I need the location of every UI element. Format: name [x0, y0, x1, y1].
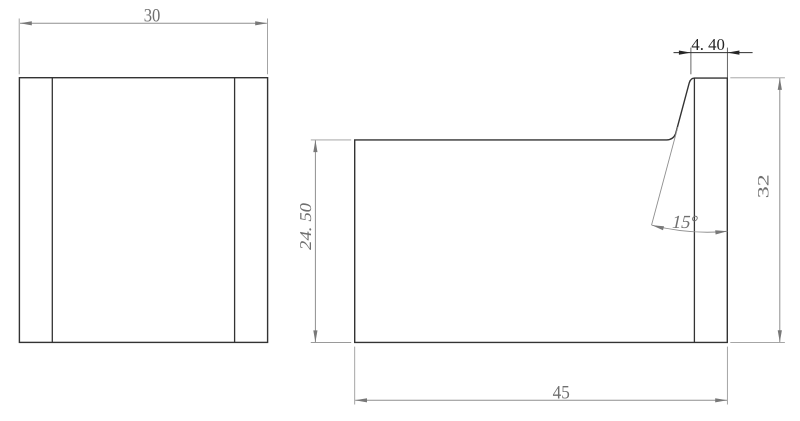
svg-text:45: 45 [553, 383, 570, 404]
svg-text:15°: 15° [670, 212, 700, 233]
svg-text:4. 40: 4. 40 [691, 35, 725, 54]
svg-text:32: 32 [756, 174, 773, 198]
svg-text:24. 50: 24. 50 [296, 201, 315, 251]
svg-text:30: 30 [144, 5, 161, 26]
